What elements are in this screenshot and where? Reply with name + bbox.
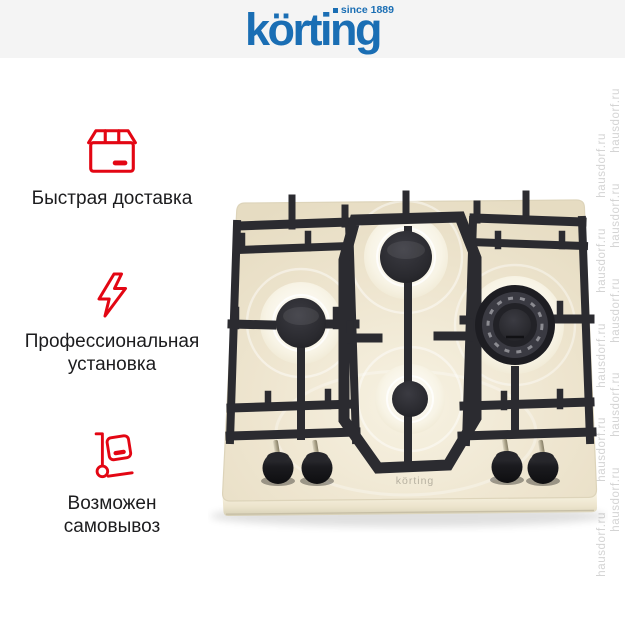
feature-pickup: Возможен самовывоз [14, 430, 210, 538]
brand-since: since 1889 [333, 4, 394, 16]
feature-pro-install: Профессиональная установка [14, 272, 210, 376]
watermark-column-outer: hausdorf.ru hausdorf.ru hausdorf.ru haus… [611, 88, 623, 532]
watermark-text: hausdorf.ru [611, 467, 623, 532]
watermark-text: hausdorf.ru [611, 88, 623, 153]
handtruck-icon [87, 430, 137, 480]
hob-brand-engraving: körting [396, 475, 435, 487]
lightning-icon [94, 272, 130, 318]
brand-since-text: since 1889 [341, 4, 394, 16]
watermark-text: hausdorf.ru [611, 278, 623, 343]
feature-label: Профессиональная установка [14, 331, 210, 376]
feature-label: Возможен самовывоз [37, 493, 187, 538]
feature-fast-delivery: Быстрая доставка [14, 127, 210, 211]
logo-square-icon [333, 8, 338, 13]
burner-wok [475, 285, 555, 365]
header-band: körting since 1889 [0, 0, 625, 58]
brand-logo: körting since 1889 [245, 6, 380, 58]
watermark-text: hausdorf.ru [611, 372, 623, 437]
burner-bottom-cap [392, 381, 428, 417]
package-icon [85, 127, 139, 175]
product-image-gas-hob: körting [208, 178, 608, 533]
feature-label: Быстрая доставка [32, 188, 193, 211]
watermark-text: hausdorf.ru [611, 183, 623, 248]
